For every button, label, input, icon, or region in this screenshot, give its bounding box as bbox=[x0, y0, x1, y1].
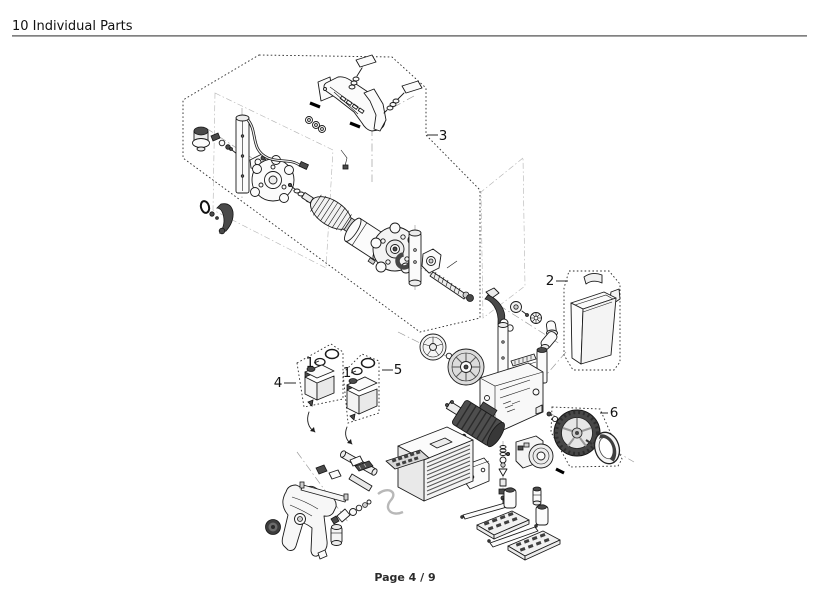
drain-hose bbox=[378, 490, 403, 513]
hopper-bucket bbox=[571, 273, 620, 364]
oring-ratchet-arm bbox=[200, 200, 234, 234]
handle-assembly bbox=[306, 55, 423, 133]
clamp-bracket bbox=[422, 249, 441, 273]
callout-1-right: 1 bbox=[343, 365, 352, 381]
page-number: Page 4 / 9 bbox=[0, 571, 810, 584]
rocker-arm-set bbox=[485, 288, 559, 350]
callout-4: 4 bbox=[274, 375, 283, 391]
manual-page: 10 Individual Parts bbox=[0, 0, 823, 590]
drive-pulleys bbox=[420, 334, 484, 385]
square-post bbox=[409, 230, 421, 286]
callout-6: 6 bbox=[610, 405, 619, 421]
callout-3: 3 bbox=[439, 128, 448, 144]
base-foot-plates bbox=[461, 488, 560, 560]
callout-5: 5 bbox=[394, 362, 403, 378]
callout-1-left: 1 bbox=[306, 355, 315, 371]
pressure-knob-set bbox=[193, 127, 238, 154]
filter-fitting bbox=[533, 487, 541, 505]
exploded-parts-diagram: 3 2 4 5 6 1 1 bbox=[0, 0, 823, 590]
callouts: 3 2 4 5 6 1 1 bbox=[274, 128, 619, 421]
upright-post-left bbox=[236, 115, 249, 193]
callout-2: 2 bbox=[546, 273, 555, 289]
